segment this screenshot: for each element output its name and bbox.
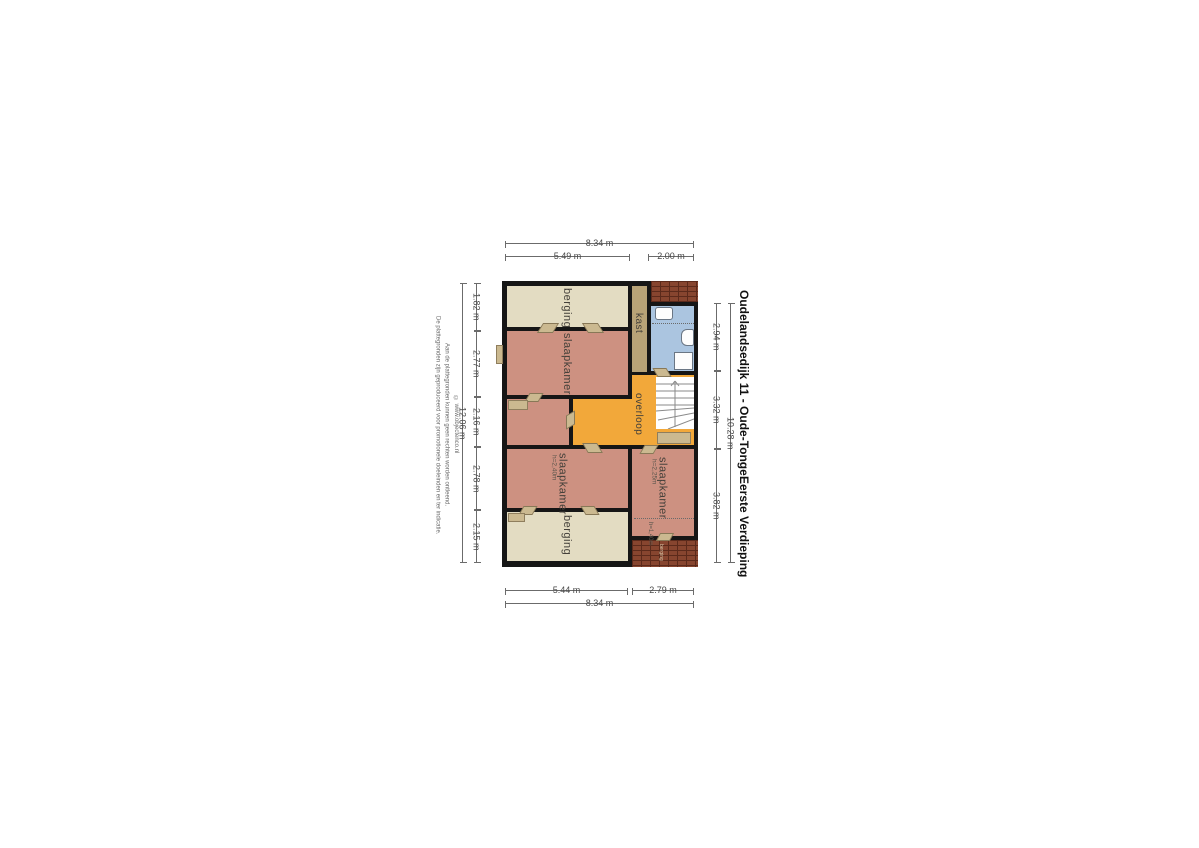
dim-left-seg-3: 2.16 m — [476, 397, 477, 447]
closet — [508, 513, 525, 522]
roof-brick-area — [651, 281, 698, 302]
room-label-berging-top: berging — [561, 288, 572, 328]
room-label-kast: kast — [633, 313, 643, 333]
dim-left-seg-2: 2.77 m — [476, 331, 477, 397]
dim-bottom-seg-1: 5.44 m — [505, 590, 628, 591]
dim-right-total: 10.28 m — [730, 303, 731, 563]
room-label-berging-bottom: berging — [561, 515, 572, 555]
room-label-overloop: overloop — [633, 393, 643, 435]
stair-treads — [656, 377, 694, 429]
room-label-slaapkamer-3: slaapkamer h=2,25m — [650, 457, 668, 519]
room-name: slaapkamer — [657, 457, 668, 519]
room-label-slaapkamer-1: slaapkamer — [561, 333, 572, 395]
closet — [657, 432, 691, 444]
room-berging-exterior — [632, 540, 698, 567]
disclaimer-line-1: De plattegronden zijn geproduceerd voor … — [432, 285, 441, 565]
plan-title-floor: Eerste Verdieping — [736, 476, 751, 577]
dim-left-seg-1: 1.82 m — [476, 283, 477, 331]
room-label-slaapkamer-2: slaapkamer h=2,40m — [550, 453, 568, 515]
room-height-note: h=2,25m — [650, 459, 657, 519]
plan-title: Oudelandsedijk 11 - Oude-Tonge Eerste Ve… — [736, 290, 751, 580]
floor-plan: berging slaapkamer kast overloop slaapka… — [502, 281, 698, 567]
dim-top-seg-2: 2.00 m — [648, 256, 694, 257]
room-height-note-low: h=1,40m — [647, 522, 653, 546]
closet — [508, 400, 528, 410]
dim-top-total: 8.34 m — [505, 243, 694, 244]
wall-niche — [496, 345, 503, 364]
sink-icon — [655, 307, 673, 320]
disclaimer: De plattegronden zijn geproduceerd voor … — [432, 285, 460, 565]
floorplan-page: 8.34 m 5.49 m 2.00 m 5.44 m 2.79 m 8.34 … — [0, 0, 1199, 848]
dim-left-seg-4: 2.78 m — [476, 447, 477, 510]
dim-right-seg-3: 3.82 m — [716, 449, 717, 563]
dim-bottom-total: 8.34 m — [505, 603, 694, 604]
plan-title-address: Oudelandsedijk 11 - Oude-Tonge — [736, 290, 751, 476]
dim-right-seg-1: 2.94 m — [716, 303, 717, 371]
bathroom-divider — [652, 323, 694, 324]
toilet-icon — [681, 329, 694, 346]
disclaimer-copyright: © www.objectenco.nl — [451, 285, 460, 565]
room-label-berging-exterior: berging — [658, 544, 663, 561]
disclaimer-line-2: Aan de plattegronden kunnen geen rechten… — [441, 285, 450, 565]
shower-icon — [674, 352, 693, 370]
room-name: slaapkamer — [557, 453, 568, 515]
dim-left-total: 12.06 m — [462, 283, 463, 563]
dim-bottom-seg-2: 2.79 m — [632, 590, 694, 591]
dim-top-seg-1: 5.49 m — [505, 256, 630, 257]
room-height-note: h=2,40m — [550, 455, 557, 515]
dim-left-seg-5: 2.15 m — [476, 510, 477, 563]
staircase — [656, 377, 694, 429]
dim-right-seg-2: 3.32 m — [716, 371, 717, 449]
